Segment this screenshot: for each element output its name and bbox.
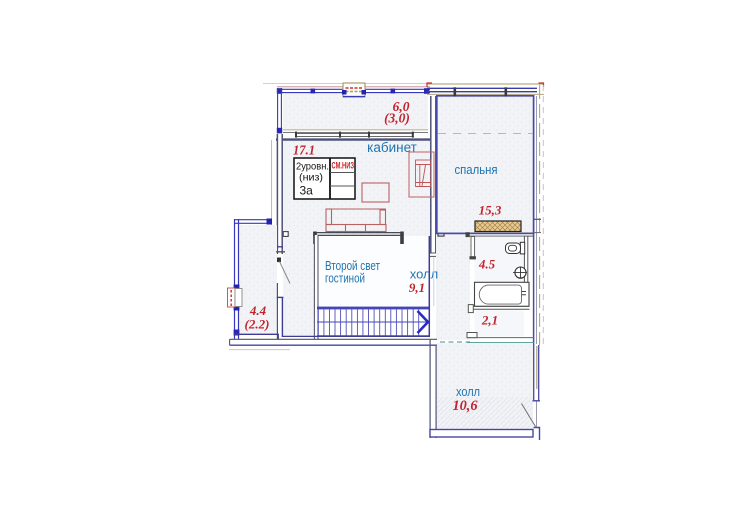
svg-text:СМ.НИЗ: СМ.НИЗ [332,161,355,171]
svg-text:10,6: 10,6 [453,398,479,414]
svg-text:холл: холл [456,384,480,399]
svg-text:4.5: 4.5 [478,257,496,272]
svg-text:(3,0): (3,0) [384,111,410,126]
svg-text:3а: 3а [300,184,314,198]
svg-text:спальня: спальня [455,163,498,177]
svg-text:(низ): (низ) [299,172,323,184]
svg-text:гостиной: гостиной [325,272,365,286]
svg-text:9,1: 9,1 [409,280,425,295]
svg-text:15,3: 15,3 [479,203,502,218]
svg-text:2,1: 2,1 [481,313,498,328]
svg-text:17.1: 17.1 [293,144,315,159]
svg-text:(2.2): (2.2) [245,317,270,332]
